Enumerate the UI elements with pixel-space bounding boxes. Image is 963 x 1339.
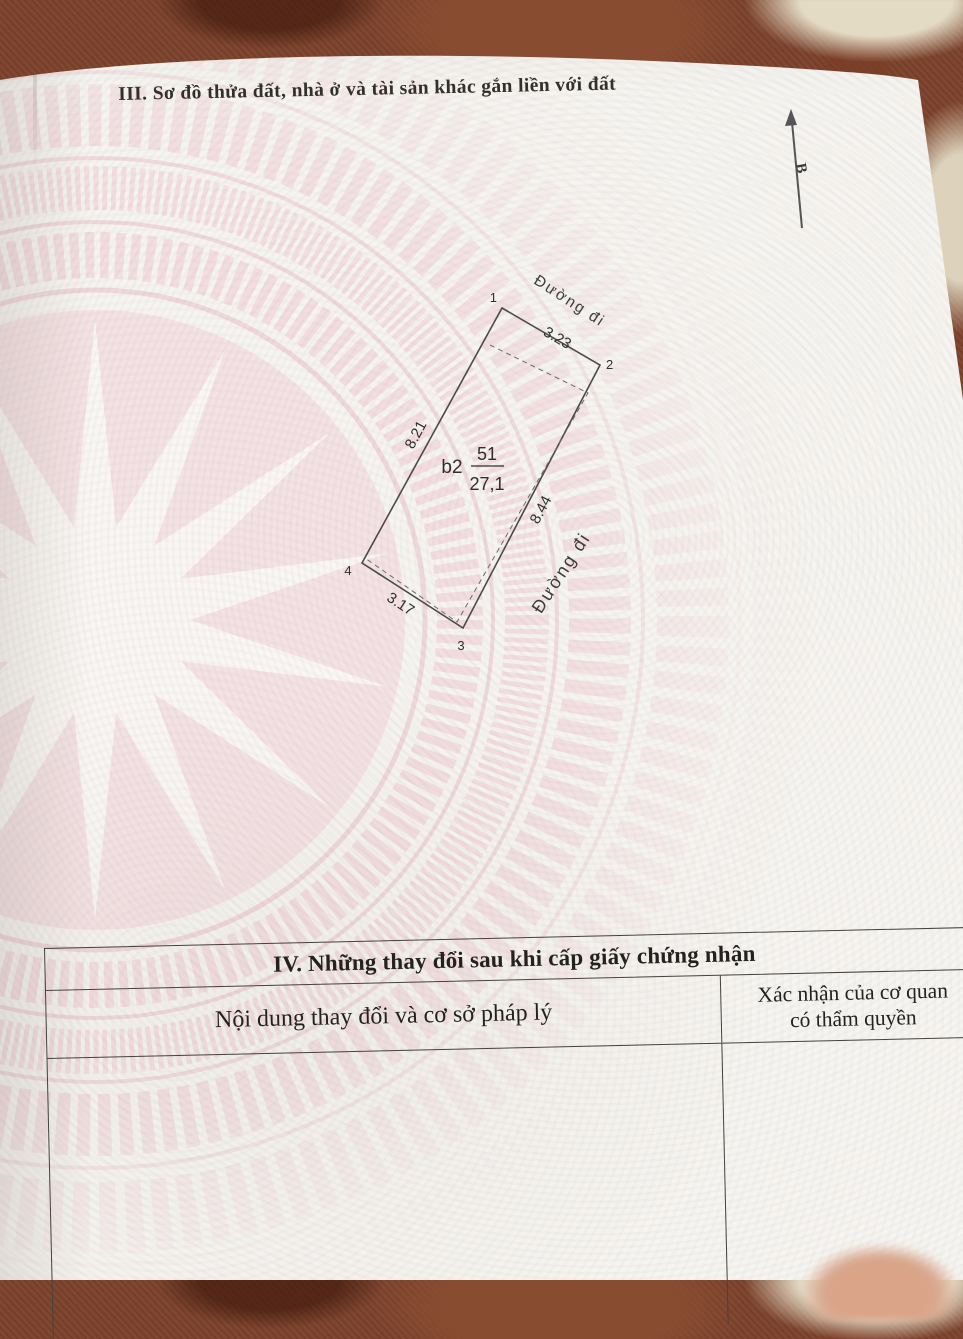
vertex-3-label: 3 bbox=[457, 638, 464, 653]
parcel-diagram: 1 2 3 4 3.23 8.21 8.44 3.17 b2 51 27,1 Đ… bbox=[320, 270, 665, 695]
table-column-divider bbox=[721, 1044, 729, 1324]
north-arrow-head bbox=[785, 109, 797, 126]
col2-header-cell: Xác nhận của cơ quan có thẩm quyền bbox=[721, 970, 963, 1043]
fingertip bbox=[770, 1200, 963, 1320]
road-label-top: Đường đi bbox=[531, 272, 608, 331]
vertex-4-label: 4 bbox=[344, 563, 351, 578]
north-label: B bbox=[792, 162, 809, 175]
col2-header-line2: có thẩm quyền bbox=[790, 1005, 917, 1033]
edge-bottom-length: 3.17 bbox=[384, 589, 418, 619]
vertex-1-label: 1 bbox=[490, 290, 497, 305]
parcel-number-label: 51 bbox=[477, 444, 497, 464]
vertex-2-label: 2 bbox=[606, 357, 613, 372]
col1-header: Nội dung thay đổi và cơ sở pháp lý bbox=[215, 999, 553, 1034]
north-arrow-shaft bbox=[792, 122, 802, 228]
road-label-right: Đường đi bbox=[528, 529, 595, 617]
edge-top-length: 3.23 bbox=[540, 323, 574, 352]
parcel-area-label: 27,1 bbox=[469, 474, 504, 494]
north-arrow: B bbox=[755, 100, 845, 245]
house-code-label: b2 bbox=[441, 457, 462, 478]
col2-header-line1: Xác nhận của cơ quan bbox=[757, 979, 948, 1009]
section-iv-title: IV. Những thay đổi sau khi cấp giấy chứn… bbox=[273, 940, 756, 977]
